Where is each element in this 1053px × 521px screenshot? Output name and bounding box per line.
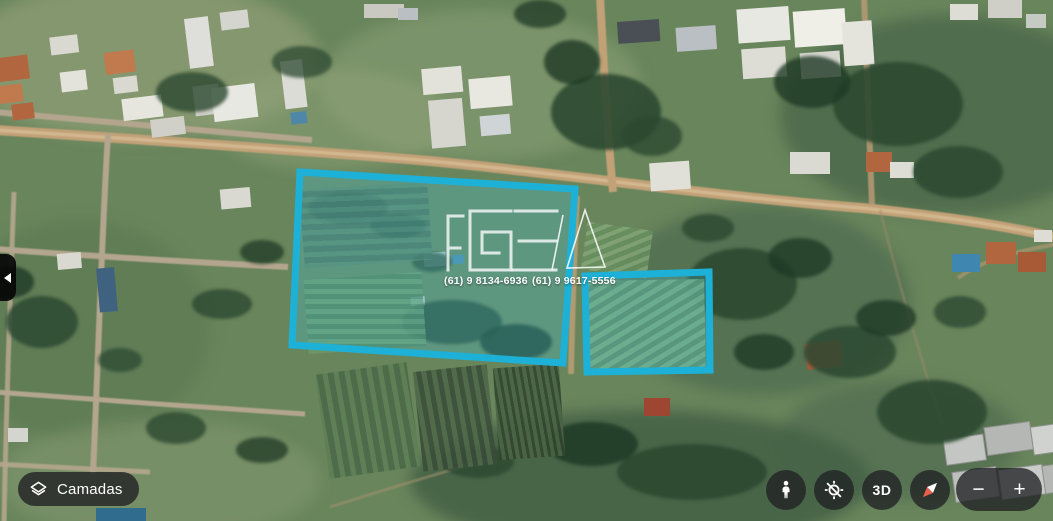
zoom-out-button[interactable]: − bbox=[958, 468, 999, 511]
parcel-highlight-small[interactable] bbox=[585, 272, 710, 372]
watermark-phone-1: (61) 9 8134-6936 bbox=[444, 275, 528, 287]
pegman-button[interactable] bbox=[766, 470, 806, 510]
my-location-button[interactable] bbox=[814, 470, 854, 510]
compass-needle-icon bbox=[918, 478, 942, 502]
3d-button-label: 3D bbox=[873, 482, 892, 498]
street-view-person-icon bbox=[775, 479, 797, 501]
parcel-highlight-large[interactable] bbox=[292, 172, 575, 363]
layers-icon bbox=[29, 480, 48, 499]
layers-button[interactable]: Camadas bbox=[18, 472, 139, 506]
chevron-left-icon bbox=[4, 273, 11, 283]
layers-button-label: Camadas bbox=[57, 481, 123, 498]
compass-button[interactable] bbox=[910, 470, 950, 510]
zoom-in-button[interactable]: + bbox=[999, 468, 1040, 511]
zoom-control: − + bbox=[956, 468, 1042, 511]
crosshair-disabled-icon bbox=[823, 479, 845, 501]
map-overlays bbox=[0, 0, 1053, 521]
map-canvas[interactable]: (61) 9 8134-6936 (61) 9 9617-5556 Camada… bbox=[0, 0, 1053, 521]
3d-view-button[interactable]: 3D bbox=[862, 470, 902, 510]
watermark-phone-2: (61) 9 9617-5556 bbox=[532, 275, 616, 287]
panel-collapse-button[interactable] bbox=[0, 254, 16, 301]
